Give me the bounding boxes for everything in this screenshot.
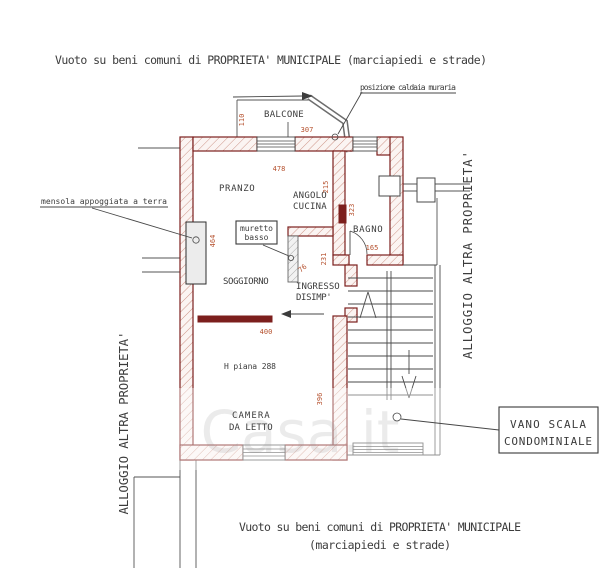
wall-ingresso-right-upper <box>345 265 357 286</box>
label-basso: basso <box>245 233 269 242</box>
dim-pranzo-w: 478 <box>273 165 286 173</box>
wall-bagno-bottom-right <box>367 255 403 265</box>
label-pranzo: PRANZO <box>219 184 255 194</box>
label-h-piana: H piana 288 <box>224 362 276 371</box>
label-cucina: CUCINA <box>293 202 327 212</box>
label-bagno: BAGNO <box>353 225 383 235</box>
label-disimp: DISIMP' <box>296 293 332 303</box>
dim-mensola-wall: 464 <box>209 235 217 248</box>
label-condominiale: CONDOMINIALE <box>504 435 592 448</box>
dim-disimp-w: 76 <box>297 263 309 275</box>
wall-top-left <box>193 137 257 151</box>
dim-disimp-h: 231 <box>320 253 328 266</box>
wall-new-bagno <box>339 205 346 223</box>
floor-plan-page: Casa.it BALCONE PRANZO ANGOLO CUCINA BAG… <box>0 0 609 568</box>
north-arrow-line <box>233 92 313 100</box>
stair-up-arrow <box>368 292 376 318</box>
wall-cucina-bagno <box>333 151 345 255</box>
window-balcony-door <box>257 137 295 151</box>
watermark: Casa.it <box>85 388 515 470</box>
bottom-title-line1: Vuoto su beni comuni di PROPRIETA' MUNIC… <box>239 520 521 534</box>
dim-bagno-w: 165 <box>366 244 379 252</box>
label-balcone: BALCONE <box>264 110 304 120</box>
wall-new-soggiorno-camera <box>198 316 272 322</box>
dim-balcone-h: 110 <box>238 114 246 127</box>
label-mensola: mensola appoggiata a terra <box>41 197 167 206</box>
label-camera: CAMERA <box>232 411 270 421</box>
neighbor-pilaster <box>417 178 435 202</box>
caldaia-leader <box>338 92 362 134</box>
dim-camera-h: 396 <box>316 393 324 406</box>
label-da-letto: DA LETTO <box>229 423 273 433</box>
side-label-left: ALLOGGIO ALTRA PROPRIETA' <box>116 332 131 515</box>
top-title: Vuoto su beni comuni di PROPRIETA' MUNIC… <box>55 53 487 67</box>
label-vano-scala: VANO SCALA <box>510 418 586 431</box>
wall-bagno-bottom-left <box>333 255 349 265</box>
label-ingresso: INGRESSO <box>296 282 340 292</box>
wall-kitchen-peninsula <box>288 227 333 236</box>
arrow-line <box>233 96 303 97</box>
label-caldaia: posizione caldaia muraria <box>360 83 456 92</box>
side-label-right: ALLOGGIO ALTRA PROPRIETA' <box>460 151 475 359</box>
mensola-leader <box>92 208 192 238</box>
wall-top-mid <box>295 137 353 151</box>
entry-arrowhead <box>281 310 291 318</box>
bottom-title-line2: (marciapiedi e strade) <box>309 538 451 552</box>
label-soggiorno: SOGGIORNO <box>223 277 269 287</box>
mensola-shelf <box>186 222 206 284</box>
muretto-leader <box>263 245 289 256</box>
stair-up-arrow <box>360 292 368 318</box>
floor-plan-drawing: Casa.it BALCONE PRANZO ANGOLO CUCINA BAG… <box>0 0 609 568</box>
dim-bagno-wall: 323 <box>348 204 356 217</box>
dim-camera-w: 400 <box>260 328 273 336</box>
label-muretto: muretto <box>240 224 273 233</box>
bagno-wall-block <box>379 176 400 196</box>
wall-bagno-right <box>390 137 403 262</box>
dim-cucina-h: 215 <box>322 181 330 194</box>
window-top-right <box>353 137 377 151</box>
dim-balcone-w: 307 <box>301 126 314 134</box>
